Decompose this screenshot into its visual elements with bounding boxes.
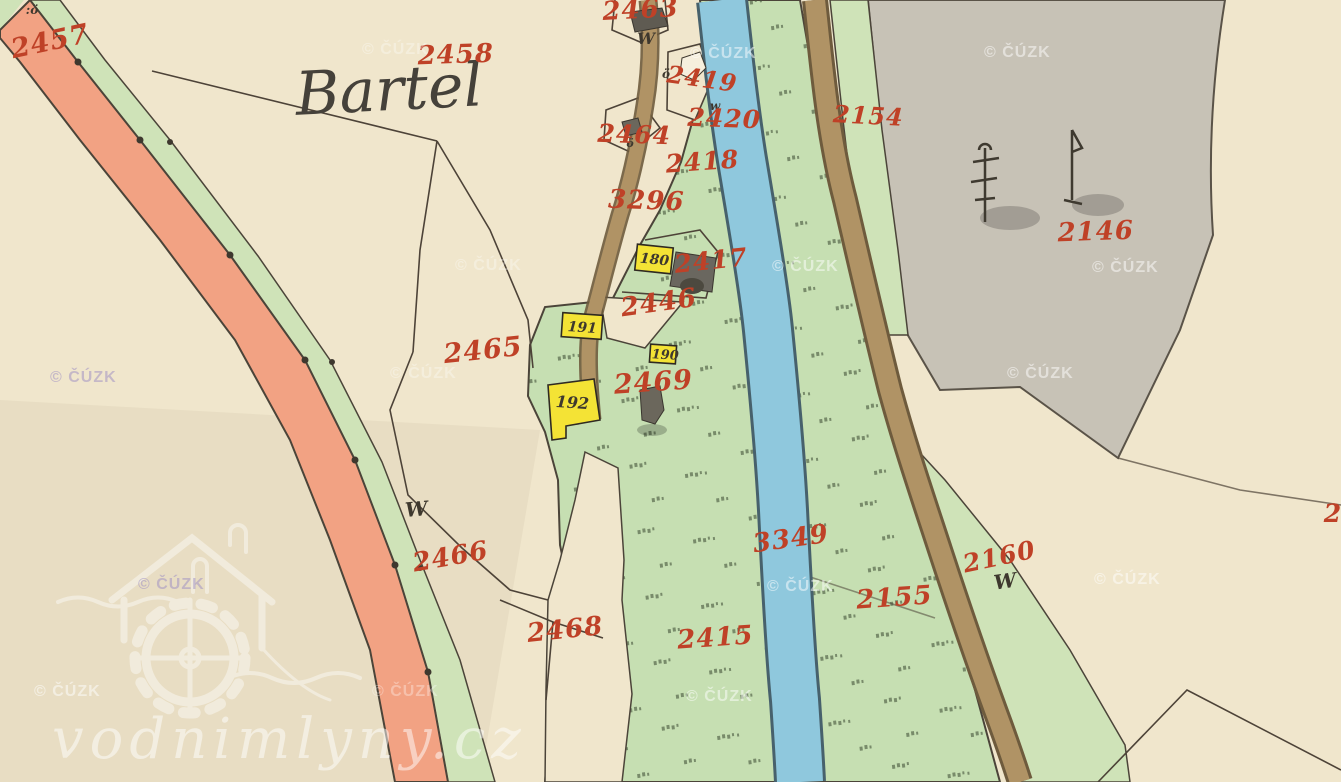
- copyright-watermark: © ČÚZK: [390, 363, 457, 382]
- copyright-watermark: © ČÚZK: [690, 43, 757, 62]
- parcel-label-2155: 2155: [854, 580, 933, 615]
- parcel-label-2418: 2418: [664, 144, 740, 178]
- copyright-watermark: © ČÚZK: [686, 686, 753, 705]
- building-label-190: 190: [651, 347, 679, 363]
- copyright-watermark: © ČÚZK: [767, 576, 834, 595]
- copyright-watermark: © ČÚZK: [1007, 363, 1074, 382]
- map-canvas[interactable]: Bartel 180 191 190 192 W w W W :ö ö ö 24…: [0, 0, 1341, 782]
- parcel-label-2146: 2146: [1056, 216, 1134, 249]
- building-label-191: 191: [567, 319, 597, 337]
- parcel-label-edge-partial: 2: [1323, 499, 1341, 528]
- copyright-watermark: © ČÚZK: [984, 42, 1051, 61]
- copyright-watermark: © ČÚZK: [1092, 257, 1159, 276]
- copyright-watermark: © ČÚZK: [138, 574, 205, 593]
- building-label-180: 180: [639, 251, 670, 270]
- meadow-w-symbol: W: [637, 29, 657, 48]
- house-marker: :ö: [26, 3, 38, 17]
- parcel-label-2415: 2415: [675, 620, 754, 655]
- copyright-watermark: © ČÚZK: [1094, 569, 1161, 588]
- parcel-label-2463: 2463: [601, 0, 680, 27]
- copyright-watermark: © ČÚZK: [50, 367, 117, 386]
- site-watermark: vodnimlyny.cz: [52, 707, 527, 772]
- parcel-label-3296: 3296: [608, 185, 685, 218]
- cadastral-map-svg: Bartel 180 191 190 192 W w W W :ö ö ö 24…: [0, 0, 1341, 782]
- copyright-watermark: © ČÚZK: [34, 681, 101, 700]
- parcel-label-2154: 2154: [831, 99, 904, 132]
- parcel-label-2469: 2469: [612, 364, 694, 401]
- building-label-192: 192: [555, 392, 590, 413]
- copyright-watermark: © ČÚZK: [372, 681, 439, 700]
- copyright-watermark: © ČÚZK: [455, 255, 522, 274]
- copyright-watermark: © ČÚZK: [362, 39, 429, 58]
- parcel-label-2464: 2464: [596, 119, 672, 151]
- copyright-watermark: © ČÚZK: [772, 256, 839, 275]
- parcel-label-2420: 2420: [686, 103, 762, 135]
